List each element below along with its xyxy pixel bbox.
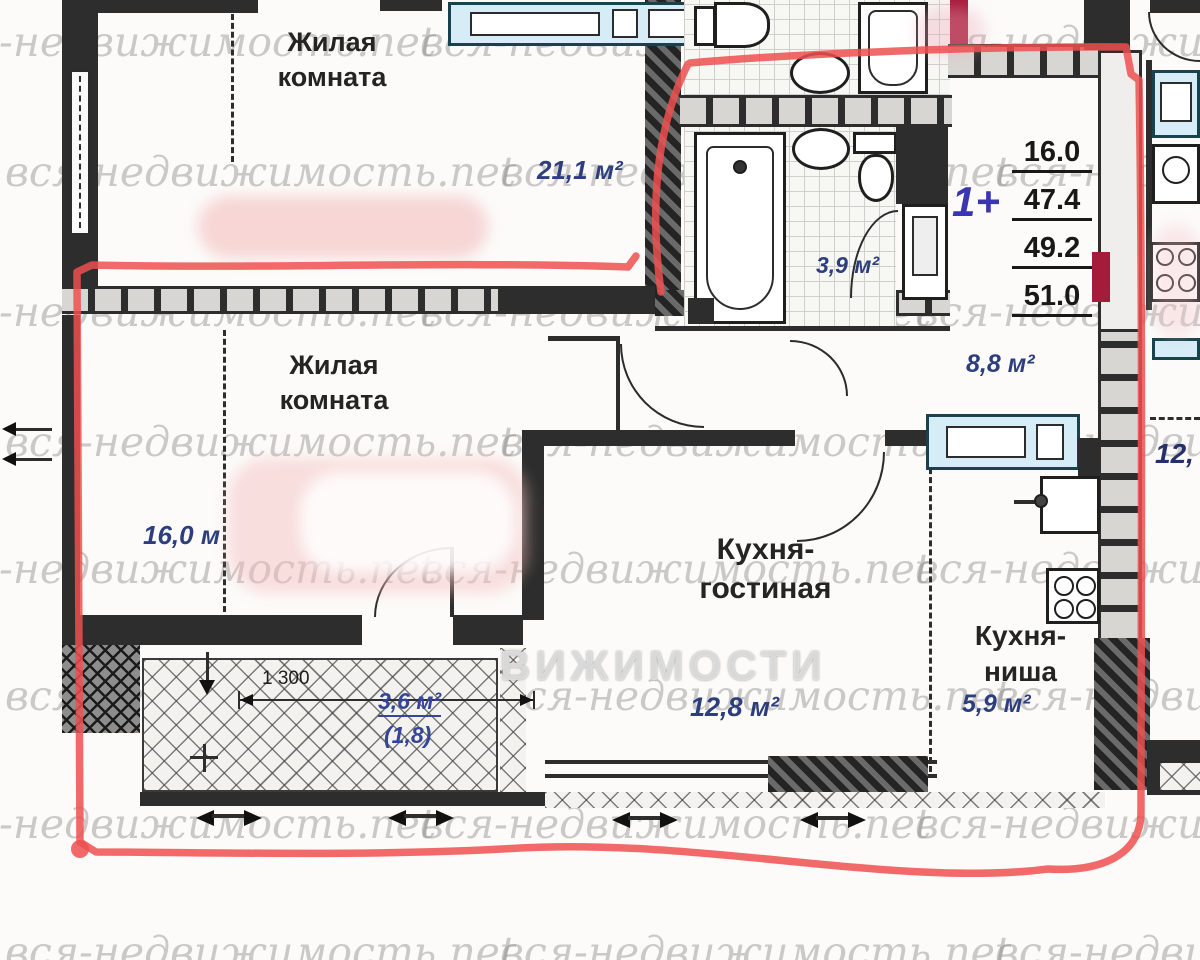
red-annotation-outline <box>0 0 1200 960</box>
red-annotation-blob <box>71 840 89 858</box>
red-annotation-path <box>656 64 688 292</box>
floor-plan-canvas: вся-недвижимость.netвся-недвижимость.net… <box>0 0 1200 960</box>
red-annotation-path <box>77 47 1142 873</box>
